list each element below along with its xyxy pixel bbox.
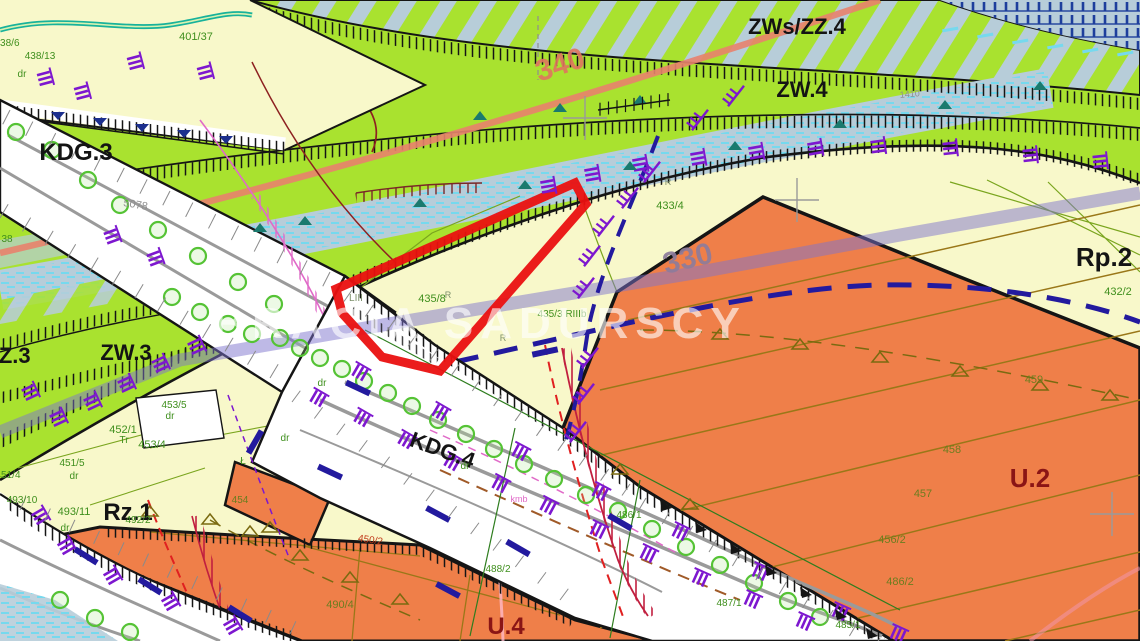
parcel-458: 458	[943, 444, 961, 456]
parcel-457: 457	[914, 488, 932, 500]
tree-symbol	[546, 471, 562, 487]
land-use-l: Ł	[240, 456, 246, 467]
zone-label-rp2: Rp.2	[1076, 242, 1132, 272]
tree-symbol	[458, 426, 474, 442]
parcel-486-1: 486/1	[616, 510, 641, 521]
parcel-493-11: 493/11	[58, 506, 91, 518]
tree-symbol	[87, 610, 103, 626]
parcel-486-2: 486/2	[886, 576, 914, 588]
parcel-492-2: 492/2	[125, 515, 150, 526]
parcel-493-10: 493/10	[7, 495, 38, 506]
parcel-456-2: 456/2	[878, 534, 906, 546]
tree-symbol	[644, 521, 660, 537]
tree-symbol	[578, 487, 594, 503]
parcel-451-5: 451/5	[59, 458, 84, 469]
tree-symbol	[80, 172, 96, 188]
parcel-488-2: 488/2	[485, 564, 510, 575]
tree-symbol	[780, 593, 796, 609]
tree-symbol	[230, 274, 246, 290]
land-use-r3: R	[665, 177, 672, 187]
tree-symbol	[190, 248, 206, 264]
tree-symbol	[52, 592, 68, 608]
tree-symbol	[164, 289, 180, 305]
road-mark-dr-3: dr	[70, 471, 80, 482]
zone-label-zw3: ZW.3	[100, 340, 151, 365]
tree-symbol	[8, 124, 24, 140]
tree-symbol	[486, 441, 502, 457]
zone-label-zz3: ZZ.3	[0, 343, 31, 368]
parcel-459: 459	[1025, 374, 1043, 386]
parcel-485-1: 485/1	[835, 620, 860, 631]
road-mark-dr-2: dr	[166, 411, 176, 422]
parcel-438-13: 438/13	[25, 51, 56, 62]
parcel-453-4: 453/4	[138, 439, 166, 451]
zone-label-kdg3: KDG.3	[39, 139, 112, 166]
tree-symbol	[312, 350, 328, 366]
tree-symbol	[812, 609, 828, 625]
tree-symbol	[678, 539, 694, 555]
tree-symbol	[150, 222, 166, 238]
note-kmb: kmb	[510, 494, 527, 504]
parcel-38: 38	[1, 234, 13, 245]
road-mark-dr-4: dr	[61, 523, 71, 534]
parcel-438-6: 438/6	[0, 38, 20, 49]
parcel-401-37: 401/37	[179, 31, 213, 43]
zone-label-zws-zz4: ZWs/ZZ.4	[748, 14, 847, 39]
tree-symbol	[192, 304, 208, 320]
tree-symbol	[122, 624, 138, 640]
road-mark-dr-6: dr	[281, 433, 291, 444]
tree-symbol	[404, 398, 420, 414]
zoning-map-svg: ZWs/ZZ.4ZW.4KDG.3ZZ.3ZW.3Rz.1KDG.4U.4U.2…	[0, 0, 1140, 641]
zoning-map-canvas[interactable]: ZWs/ZZ.4ZW.4KDG.3ZZ.3ZW.3Rz.1KDG.4U.4U.2…	[0, 0, 1140, 641]
parcel-454: 454	[232, 495, 249, 506]
tree-symbol	[712, 557, 728, 573]
ref-number-1410: 1410	[899, 88, 920, 100]
zone-label-zw4: ZW.4	[776, 77, 828, 102]
parcel-453-5: 453/5	[161, 400, 186, 411]
tree-symbol	[334, 361, 350, 377]
parcel-433-4: 433/4	[656, 200, 684, 212]
watermark-text: BRACIA SADURSCY	[213, 299, 747, 348]
zone-label-u2: U.2	[1010, 463, 1050, 493]
road-mark-dr-1: dr	[18, 69, 28, 80]
tree-symbol	[746, 575, 762, 591]
parcel-487-1: 487/1	[716, 598, 741, 609]
land-use-tr: Tr	[119, 435, 129, 446]
parcel-432-2: 432/2	[1104, 286, 1132, 298]
parcel-451-4: 451/4	[0, 470, 21, 481]
road-mark-dr-7: dr	[461, 461, 471, 472]
road-mark-dr-5: dr	[318, 378, 328, 389]
tree-symbol	[380, 385, 396, 401]
parcel-490-4: 490/4	[326, 599, 354, 611]
zone-label-u4: U.4	[487, 613, 525, 640]
